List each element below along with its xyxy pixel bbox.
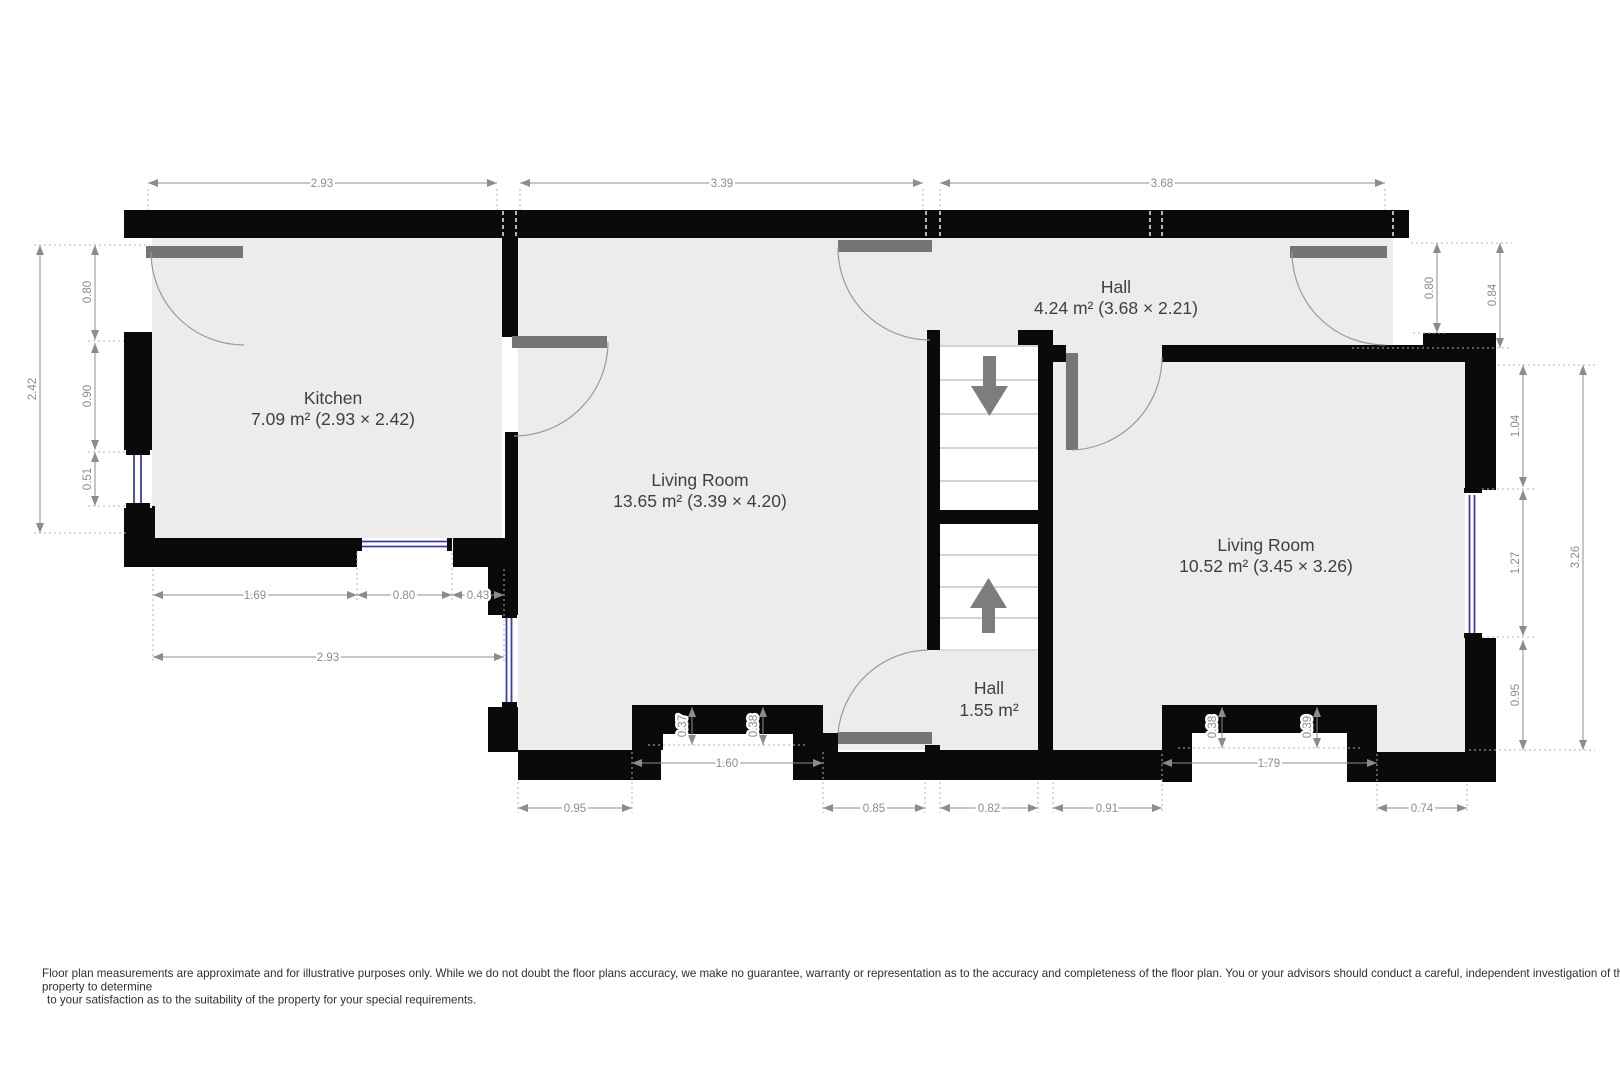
wall-living-left-upper bbox=[488, 538, 518, 615]
wall-stair-left bbox=[927, 330, 940, 650]
dim-right-door: 0.80 bbox=[1424, 243, 1437, 333]
door-leaf-icon bbox=[1066, 353, 1078, 450]
dim-label: 2.93 bbox=[311, 178, 333, 190]
dim-label: 0.51 bbox=[82, 468, 94, 490]
wall-stair-right bbox=[1038, 330, 1053, 780]
door-leaf-icon bbox=[838, 732, 932, 744]
window-kitchen-left bbox=[124, 450, 152, 508]
wall-kitchen-partition-top bbox=[502, 238, 518, 337]
dim-bottom-hall: 0.82 bbox=[940, 803, 1038, 815]
disclaimer-line-1: Floor plan measurements are approximate … bbox=[42, 967, 1620, 980]
dim-kitchen-bottom-window: 0.80 bbox=[357, 590, 452, 602]
living-right-area-label: 10.52 m² (3.45 × 3.26) bbox=[1179, 556, 1353, 576]
floor-plan-page: 2.93 3.39 3.68 2.42 0.80 0.90 0.51 bbox=[0, 0, 1620, 1080]
floor-areas bbox=[152, 238, 1467, 752]
dim-kitchen-bottom-wall: 1.69 bbox=[153, 590, 357, 602]
wall-right-lower bbox=[1465, 638, 1496, 782]
hall-bottom-label: Hall bbox=[974, 678, 1004, 698]
dim-bottom-door-left: 0.85 bbox=[823, 803, 925, 815]
kitchen-label: Kitchen bbox=[304, 388, 362, 408]
window-kitchen-bottom bbox=[357, 538, 452, 551]
hall-bottom-area-label: 1.55 m² bbox=[959, 700, 1018, 720]
dim-label: 1.79 bbox=[1258, 758, 1280, 770]
dim-label: 3.39 bbox=[711, 178, 733, 190]
wall-livingright-bottom bbox=[1377, 752, 1467, 782]
dim-label: 0.95 bbox=[564, 803, 586, 815]
living-right-label: Living Room bbox=[1217, 535, 1314, 555]
kitchen-area-label: 7.09 m² (2.93 × 2.42) bbox=[251, 409, 415, 429]
door-leaf-icon bbox=[838, 240, 932, 252]
dim-label: 0.84 bbox=[1487, 283, 1499, 306]
wall-living-bottom bbox=[518, 750, 633, 780]
dim-label: 0.82 bbox=[978, 803, 1000, 815]
dim-right-lower: 0.95 bbox=[1510, 640, 1523, 750]
disclaimer: Floor plan measurements are approximate … bbox=[42, 967, 1620, 1007]
dim-label: 0.80 bbox=[1424, 277, 1436, 299]
wall-hall-bottom bbox=[940, 750, 1038, 780]
wall-livingright-top bbox=[1162, 345, 1496, 362]
dim-label: 3.26 bbox=[1570, 546, 1582, 568]
wall-kitchen-partition-bottom bbox=[505, 432, 518, 538]
dim-label: 1.27 bbox=[1510, 552, 1522, 574]
wall-top bbox=[124, 210, 1409, 238]
wall-frontdoor-ledge bbox=[838, 752, 927, 780]
wall-right-upper bbox=[1465, 362, 1496, 490]
chimney-right-leg-b bbox=[1347, 752, 1377, 782]
dim-top-hall: 3.68 bbox=[940, 178, 1385, 190]
wall-stair-top-nib bbox=[1018, 330, 1038, 345]
dim-label: 1.69 bbox=[244, 590, 266, 602]
dim-label: 0.80 bbox=[393, 590, 415, 602]
dim-bottom-rlr-right: 0.74 bbox=[1377, 803, 1467, 815]
hall-top-label: Hall bbox=[1101, 277, 1131, 297]
dim-label: 2.42 bbox=[27, 378, 39, 400]
dim-label: 0.95 bbox=[1510, 684, 1522, 706]
floor-plan-drawing: 2.93 3.39 3.68 2.42 0.80 0.90 0.51 bbox=[0, 0, 1620, 1080]
dim-label: 0.91 bbox=[1096, 803, 1118, 815]
wall-livingright-top-corner bbox=[1423, 333, 1496, 345]
dim-label: 1.60 bbox=[716, 758, 738, 770]
living-left-label: Living Room bbox=[651, 470, 748, 490]
dim-top-living: 3.39 bbox=[520, 178, 923, 190]
living-left-area-label: 13.65 m² (3.39 × 4.20) bbox=[613, 491, 787, 511]
dim-right-window: 1.27 bbox=[1510, 490, 1523, 636]
wall-stair-landing bbox=[927, 510, 1053, 524]
dim-right-total: 3.26 bbox=[1570, 365, 1583, 750]
disclaimer-line-2: property to determine bbox=[42, 981, 152, 994]
dim-label: 0.43 bbox=[467, 590, 489, 602]
wall-stair-left-foot bbox=[925, 745, 940, 780]
wall-living-left-corner bbox=[488, 707, 518, 752]
dim-left-total: 2.42 bbox=[27, 245, 40, 533]
wall-bottom-strip bbox=[1053, 750, 1162, 780]
dim-right-offset: 0.84 bbox=[1487, 243, 1500, 348]
window-living-right bbox=[1464, 488, 1482, 638]
dim-right-upper: 1.04 bbox=[1510, 365, 1523, 487]
dim-label: 0.85 bbox=[863, 803, 885, 815]
wall-kitchen-bottom bbox=[155, 538, 357, 567]
dim-label: 0.74 bbox=[1411, 803, 1434, 815]
dim-kitchen-bottom-total: 2.93 bbox=[153, 652, 504, 664]
dim-label: 0.39 bbox=[1302, 716, 1314, 738]
chimney-left-leg-b bbox=[793, 750, 823, 780]
disclaimer-line-3: to your satisfaction as to the suitabili… bbox=[47, 994, 476, 1007]
dim-label: 2.93 bbox=[317, 652, 339, 664]
wall-kitchen-bottom-corner bbox=[453, 538, 490, 567]
dim-label: 1.04 bbox=[1510, 414, 1522, 437]
dim-left-wall: 0.90 bbox=[82, 343, 95, 450]
dim-bottom-right-strip: 0.91 bbox=[1053, 803, 1162, 815]
dim-left-door: 0.80 bbox=[82, 245, 95, 340]
door-leaf-icon bbox=[146, 246, 243, 258]
wall-left-upper bbox=[124, 332, 152, 452]
chimney-right-leg-a bbox=[1162, 752, 1192, 782]
dim-left-window: 0.51 bbox=[82, 452, 95, 506]
wall-livingright-door-jamb bbox=[1038, 345, 1066, 362]
dim-label: 0.38 bbox=[1207, 716, 1219, 738]
dim-label: 0.37 bbox=[677, 715, 689, 737]
dim-bottom-lr-left: 0.95 bbox=[518, 803, 632, 815]
dim-bottom-rlr-recess: 1.79 bbox=[1162, 758, 1377, 770]
staircase bbox=[940, 345, 1040, 650]
dim-label: 0.38 bbox=[748, 715, 760, 737]
door-leaf-icon bbox=[512, 336, 607, 348]
dim-top-kitchen: 2.93 bbox=[148, 178, 497, 190]
hall-top-area-label: 4.24 m² (3.68 × 2.21) bbox=[1034, 298, 1198, 318]
wall-left-lower bbox=[124, 506, 155, 567]
dim-label: 3.68 bbox=[1151, 178, 1173, 190]
chimney-left-leg-a bbox=[632, 750, 661, 780]
wall-frontdoor-jamb bbox=[823, 733, 838, 780]
dim-label: 0.80 bbox=[82, 281, 94, 303]
dim-label: 0.90 bbox=[82, 385, 94, 407]
door-leaf-icon bbox=[1290, 246, 1387, 258]
